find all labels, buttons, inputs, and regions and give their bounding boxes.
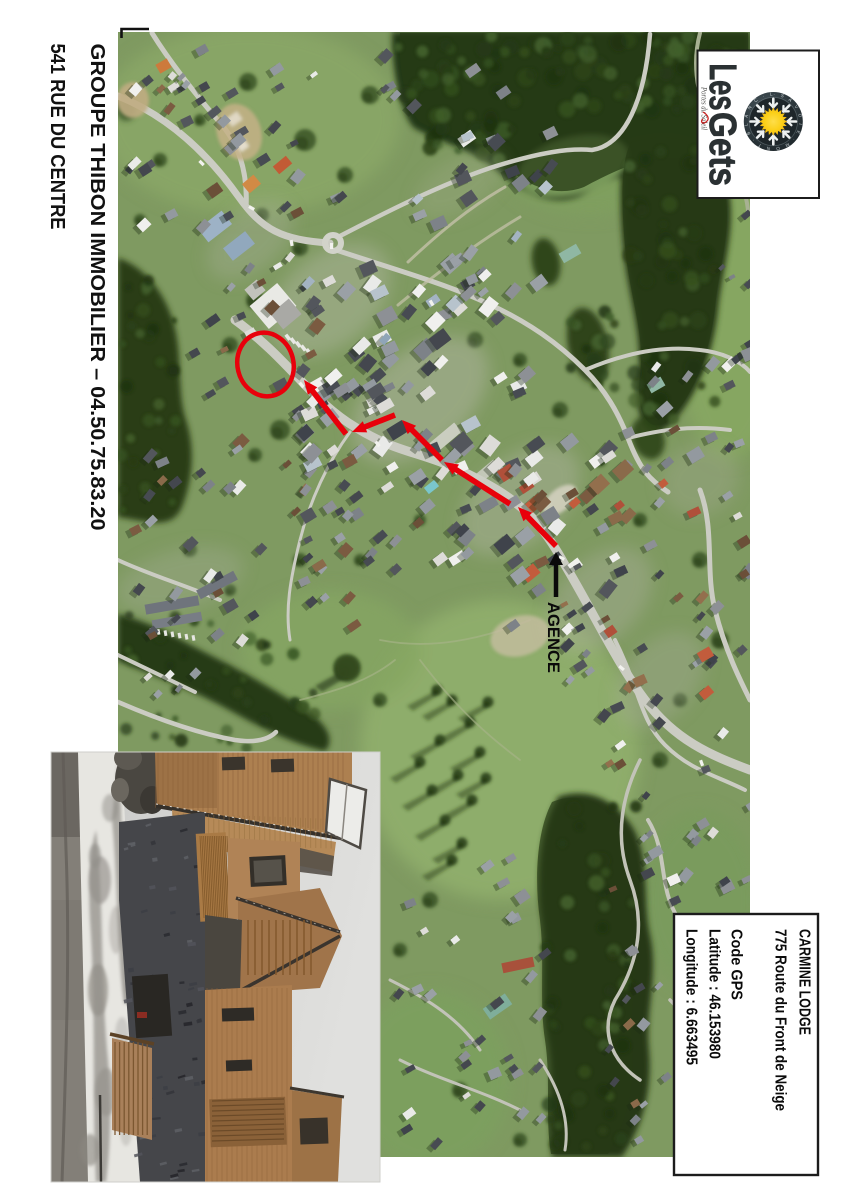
svg-text:541 RUE DU CENTRE: 541 RUE DU CENTRE [46, 44, 68, 230]
svg-text:GROUPE THIBON IMMOBILIER – 04.: GROUPE THIBON IMMOBILIER – 04.50.75.83.2… [86, 44, 108, 531]
svg-text:CARMINE LODGE: CARMINE LODGE [796, 929, 813, 1035]
svg-text:Code GPS: Code GPS [728, 929, 745, 1000]
svg-text:Latitude : 46.153980: Latitude : 46.153980 [706, 929, 723, 1059]
svg-text:AGENCE: AGENCE [544, 602, 563, 673]
svg-text:775 Route du Front de Neige: 775 Route du Front de Neige [772, 929, 789, 1111]
svg-text:Portes du Soleil: Portes du Soleil [700, 86, 710, 130]
svg-text:Longitude : 6.663495: Longitude : 6.663495 [683, 929, 700, 1065]
